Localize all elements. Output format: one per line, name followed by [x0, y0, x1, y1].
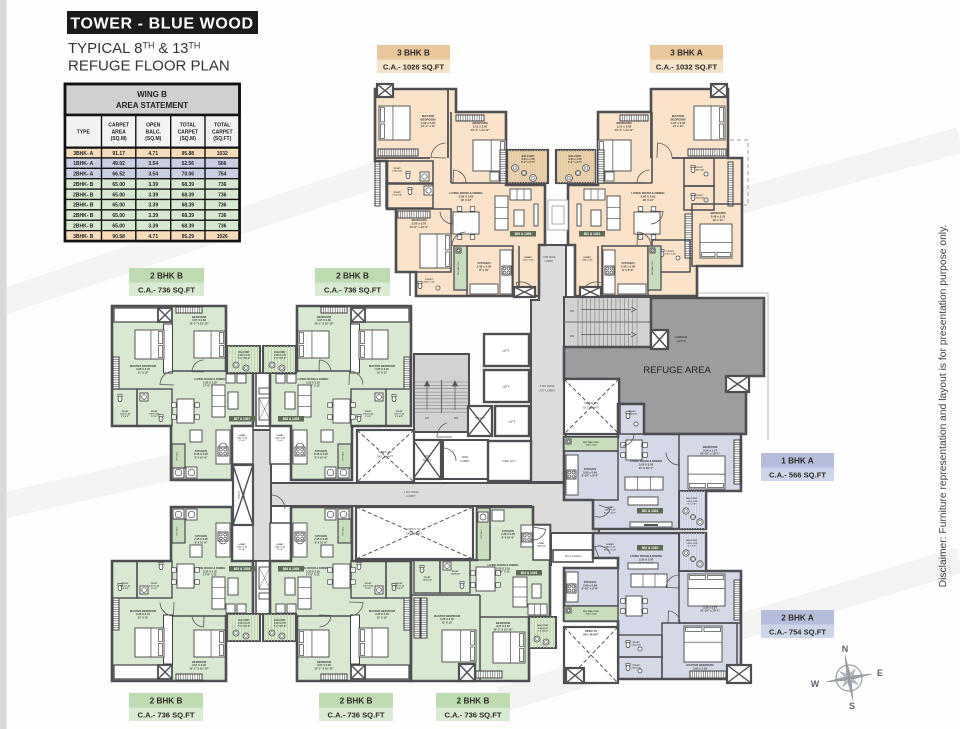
svg-text:OPEN: OPEN	[146, 123, 161, 129]
svg-text:2.05x1.40: 2.05x1.40	[694, 169, 705, 172]
svg-text:LOBBY: LOBBY	[606, 544, 614, 546]
svg-text:BALCONY: BALCONY	[238, 351, 250, 354]
svg-text:C.A.- 736 SQ.FT: C.A.- 736 SQ.FT	[324, 285, 381, 294]
svg-text:DN: DN	[454, 416, 458, 420]
svg-text:804 & 1304: 804 & 1304	[521, 571, 538, 575]
svg-text:TEL.C & ELEC.: TEL.C & ELEC.	[565, 555, 582, 558]
svg-text:4.71: 4.71	[148, 151, 158, 157]
svg-text:1.70x1.35: 1.70x1.35	[694, 198, 705, 200]
svg-text:BALCONY: BALCONY	[274, 619, 286, 622]
svg-text:7'-1" X 6'-2": 7'-1" X 6'-2"	[274, 626, 287, 628]
svg-text:14'-1" x 11': 14'-1" x 11'	[421, 124, 436, 128]
svg-text:2.05x1.40: 2.05x1.40	[392, 170, 402, 173]
svg-text:Disclaimer: Furniture represen: Disclaimer: Furniture representation and…	[938, 225, 949, 588]
svg-text:5' x 4': 5' x 4'	[239, 439, 245, 442]
svg-text:2.45 X 1.07: 2.45 X 1.07	[238, 622, 250, 625]
svg-text:17'-6" X 11': 17'-6" X 11'	[306, 573, 320, 577]
svg-text:10'-6" x 12'-2": 10'-6" x 12'-2"	[410, 225, 430, 229]
svg-text:19' X 12': 19' X 12'	[642, 198, 654, 202]
svg-text:UP: UP	[570, 309, 574, 313]
svg-text:65.00: 65.00	[112, 223, 125, 229]
svg-text:90.58: 90.58	[112, 234, 125, 240]
svg-text:802 & 1302: 802 & 1302	[642, 509, 659, 513]
svg-text:2 BHK B: 2 BHK B	[336, 271, 369, 280]
svg-text:5' X 4'-5": 5' X 4'-5"	[395, 587, 403, 590]
svg-text:C.A.- 1032 SQ.FT: C.A.- 1032 SQ.FT	[656, 62, 718, 71]
svg-text:W: W	[811, 679, 820, 689]
svg-text:805 & 1305: 805 & 1305	[234, 567, 251, 571]
svg-text:FIRE: FIRE	[424, 454, 430, 458]
svg-text:5' X 8': 5' X 8'	[151, 416, 157, 418]
svg-text:C.A.- 1026 SQ.FT: C.A.- 1026 SQ.FT	[383, 62, 445, 71]
svg-text:C.A.- 736 SQ.FT: C.A.- 736 SQ.FT	[138, 285, 195, 294]
svg-text:12' x 11': 12' x 11'	[713, 218, 724, 222]
svg-text:AREA STATEMENT: AREA STATEMENT	[116, 101, 188, 110]
svg-text:736: 736	[218, 203, 227, 209]
svg-text:9'-10" x 8'-6": 9'-10" x 8'-6"	[582, 474, 599, 478]
svg-text:2.32 x 1.35: 2.32 x 1.35	[424, 282, 436, 284]
svg-text:SKY SHAFT: SKY SHAFT	[583, 406, 600, 410]
svg-text:2 BHK B: 2 BHK B	[150, 696, 183, 705]
svg-text:5' X 4'-5": 5' X 4'-5"	[121, 587, 129, 590]
svg-text:736: 736	[218, 182, 227, 188]
svg-text:TOILET: TOILET	[425, 279, 433, 281]
svg-text:11' X 12': 11' X 12'	[138, 370, 149, 374]
svg-text:(SQ.M): (SQ.M)	[145, 136, 161, 142]
svg-text:803 & 1303: 803 & 1303	[642, 546, 659, 550]
svg-text:801 & 1301: 801 & 1301	[584, 232, 601, 236]
svg-text:8' X 10'-6": 8' X 10'-6"	[195, 540, 208, 544]
svg-text:TOILET: TOILET	[695, 195, 703, 197]
svg-text:OPEN TO: OPEN TO	[407, 527, 421, 531]
svg-text:SKY SHAFT: SKY SHAFT	[377, 455, 394, 459]
svg-text:AREA: AREA	[112, 129, 127, 135]
svg-text:65.00: 65.00	[112, 203, 125, 209]
svg-text:TOTAL: TOTAL	[214, 123, 230, 129]
svg-text:68.39: 68.39	[182, 182, 195, 188]
svg-text:C.A.- 736 SQ.FT: C.A.- 736 SQ.FT	[138, 710, 195, 719]
svg-text:3BHK- A: 3BHK- A	[73, 151, 93, 157]
svg-text:LIFT: LIFT	[503, 349, 510, 353]
svg-text:1.37 x 1.35: 1.37 x 1.35	[665, 254, 677, 256]
svg-text:DRY BALC.: DRY BALC.	[342, 526, 345, 536]
svg-text:C.A.- 736 SQ.FT: C.A.- 736 SQ.FT	[328, 710, 385, 719]
svg-text:68.39: 68.39	[182, 203, 195, 209]
svg-text:8' x 8'-6": 8' x 8'-6"	[622, 268, 634, 272]
svg-text:8' X 10'-6": 8' X 10'-6"	[195, 455, 208, 459]
svg-text:DRY BALC.: DRY BALC.	[342, 451, 345, 461]
svg-text:5' X 8': 5' X 8'	[365, 588, 371, 590]
svg-text:1.50 x 1.22: 1.50 x 1.22	[523, 260, 535, 262]
svg-text:1026: 1026	[217, 234, 228, 240]
svg-text:(SQ.M): (SQ.M)	[111, 136, 127, 142]
svg-text:68.39: 68.39	[182, 192, 195, 198]
svg-text:7'-1"X6'-2": 7'-1"X6'-2"	[538, 631, 549, 633]
svg-text:3 BHK A: 3 BHK A	[670, 48, 703, 57]
svg-text:5' x 4': 5' x 4'	[277, 548, 283, 551]
svg-text:DRY BALCONY: DRY BALCONY	[583, 441, 599, 444]
svg-text:11' X 12': 11' X 12'	[377, 370, 388, 374]
svg-text:10'-4" x 11'-9": 10'-4" x 11'-9"	[615, 128, 634, 132]
svg-text:3.54: 3.54	[148, 161, 158, 167]
svg-text:3.39: 3.39	[148, 223, 158, 229]
svg-text:UP: UP	[425, 416, 429, 420]
svg-text:BALCONY: BALCONY	[274, 351, 286, 354]
svg-text:TOILET: TOILET	[666, 251, 674, 253]
svg-text:65.00: 65.00	[112, 192, 125, 198]
svg-text:DRY BALC.: DRY BALC.	[176, 451, 179, 461]
svg-text:8' X 10'-6": 8' X 10'-6"	[502, 535, 515, 539]
svg-text:P.SHAFT: P.SHAFT	[475, 417, 485, 420]
svg-text:2 BHK A: 2 BHK A	[781, 613, 814, 622]
svg-text:736: 736	[218, 223, 227, 229]
svg-text:5' X 8': 5' X 8'	[151, 588, 157, 590]
svg-text:BALCONY: BALCONY	[687, 497, 698, 500]
svg-text:BALC.: BALC.	[146, 129, 162, 135]
svg-text:1.50x1.22: 1.50x1.22	[537, 546, 547, 548]
svg-text:TOILET: TOILET	[695, 167, 703, 169]
svg-text:S: S	[849, 701, 855, 711]
svg-text:CARPET: CARPET	[178, 129, 199, 135]
svg-text:C.A.- 736 SQ.FT: C.A.- 736 SQ.FT	[445, 710, 502, 719]
svg-text:7'-1" X 6'-2": 7'-1" X 6'-2"	[238, 626, 251, 628]
svg-text:809 & 1309: 809 & 1309	[515, 232, 532, 236]
svg-text:736: 736	[218, 192, 227, 198]
svg-text:2BHK- B: 2BHK- B	[73, 213, 94, 219]
svg-text:BALCONY: BALCONY	[538, 624, 549, 627]
svg-text:5' x 7'-8": 5' x 7'-8"	[688, 546, 697, 548]
svg-text:3.00 x 0.92: 3.00 x 0.92	[586, 614, 598, 616]
svg-text:2.45 X 1.07: 2.45 X 1.07	[238, 354, 250, 357]
svg-text:FIRE LIFT: FIRE LIFT	[502, 459, 516, 463]
svg-text:1.50 x 1.12: 1.50 x 1.12	[605, 510, 617, 512]
svg-text:2.45 X 1.07: 2.45 X 1.07	[274, 622, 286, 625]
svg-text:DRY BALC.: DRY BALC.	[176, 526, 179, 536]
svg-text:5' X 8': 5' X 8'	[365, 416, 371, 418]
svg-text:68.39: 68.39	[182, 223, 195, 229]
svg-text:2BHK- B: 2BHK- B	[73, 192, 94, 198]
svg-text:1.40x1.95: 1.40x1.95	[627, 413, 637, 416]
svg-text:2 BHK B: 2 BHK B	[150, 271, 183, 280]
svg-text:5' X 4'-5": 5' X 4'-5"	[395, 415, 403, 418]
svg-text:GARBAGE: GARBAGE	[675, 335, 688, 339]
svg-text:1BHK- A: 1BHK- A	[73, 161, 93, 167]
svg-text:TYPE: TYPE	[77, 129, 91, 135]
svg-text:DRY BALCONY: DRY BALCONY	[457, 260, 460, 275]
svg-text:1032: 1032	[217, 151, 228, 157]
svg-text:19' X 12': 19' X 12'	[460, 198, 472, 202]
svg-text:2BHK- B: 2BHK- B	[73, 203, 94, 209]
svg-text:10'-1" X 10'-10": 10'-1" X 10'-10"	[493, 627, 513, 631]
svg-text:7'-1" X 6'-2": 7'-1" X 6'-2"	[274, 358, 287, 360]
svg-text:1.50X2.42: 1.50X2.42	[450, 573, 460, 576]
svg-text:3BHK- B: 3BHK- B	[73, 234, 94, 240]
svg-text:BALCONY: BALCONY	[687, 539, 698, 542]
svg-text:2BHK- B: 2BHK- B	[73, 223, 94, 229]
svg-text:65.00: 65.00	[112, 213, 125, 219]
svg-text:566: 566	[218, 161, 227, 167]
svg-text:11' X 12': 11' X 12'	[377, 615, 388, 619]
svg-text:8' x 10': 8' x 10'	[479, 268, 489, 272]
svg-text:807 & 1307: 807 & 1307	[234, 417, 251, 421]
svg-text:LOBBY: LOBBY	[583, 257, 591, 259]
svg-text:LIFT: LIFT	[509, 420, 516, 424]
svg-text:DN: DN	[570, 334, 574, 338]
svg-text:2.45 X 1.07: 2.45 X 1.07	[274, 354, 286, 357]
svg-text:TOTAL: TOTAL	[180, 123, 196, 129]
svg-text:3.54: 3.54	[148, 172, 158, 178]
svg-text:736: 736	[218, 213, 227, 219]
svg-text:1 BHK A: 1 BHK A	[781, 456, 814, 465]
svg-text:6'-9" x 3'-5": 6'-9" x 3'-5"	[568, 160, 583, 164]
svg-text:6'-9" x 3'-5": 6'-9" x 3'-5"	[521, 160, 536, 164]
svg-text:TYPICAL 8TH & 13TH: TYPICAL 8TH & 13TH	[68, 40, 200, 57]
svg-text:TOWER - BLUE WOOD: TOWER - BLUE WOOD	[70, 16, 253, 33]
svg-text:17'-6" X 11': 17'-6" X 11'	[203, 573, 217, 577]
svg-text:10'-1" X 10'-10": 10'-1" X 10'-10"	[314, 666, 334, 670]
svg-text:4'-2" x 5'-8": 4'-2" x 5'-8"	[604, 548, 616, 551]
svg-text:52.56: 52.56	[182, 161, 195, 167]
svg-text:11' X 18'-1": 11' X 18'-1"	[639, 466, 654, 470]
svg-text:3.39: 3.39	[148, 192, 158, 198]
svg-text:E: E	[877, 668, 883, 678]
svg-text:49.02: 49.02	[112, 161, 125, 167]
svg-text:SKY SHAFT: SKY SHAFT	[583, 632, 599, 636]
svg-text:DRY BALCONY: DRY BALCONY	[651, 260, 654, 275]
svg-text:2BHK- B: 2BHK- B	[73, 182, 94, 188]
svg-text:LIFT LOBBY: LIFT LOBBY	[539, 389, 556, 393]
svg-text:1.50 x 1.22: 1.50 x 1.22	[582, 260, 594, 262]
svg-text:1.52 x 2.32: 1.52 x 2.32	[687, 543, 699, 545]
svg-text:66.52: 66.52	[112, 172, 125, 178]
svg-text:OPEN TO: OPEN TO	[584, 401, 598, 405]
svg-text:8' X 10'-6": 8' X 10'-6"	[315, 455, 328, 459]
svg-text:REFUGE FLOOR PLAN: REFUGE FLOOR PLAN	[68, 58, 230, 75]
svg-text:2BHK- A: 2BHK- A	[73, 172, 93, 178]
svg-text:5' x 4': 5' x 4'	[277, 439, 283, 442]
svg-text:1.52 x 2.32: 1.52 x 2.32	[687, 501, 699, 503]
svg-text:C.A.- 754 SQ.FT: C.A.- 754 SQ.FT	[769, 627, 826, 636]
svg-text:1.5M WIDE: 1.5M WIDE	[542, 255, 556, 259]
svg-text:5' x 7'-8": 5' x 7'-8"	[688, 504, 697, 506]
svg-text:8' X 10'-6": 8' X 10'-6"	[315, 540, 328, 544]
svg-text:SKY SHAFT: SKY SHAFT	[406, 532, 423, 536]
svg-text:LOBBY: LOBBY	[406, 494, 416, 498]
svg-text:3 BHK B: 3 BHK B	[397, 48, 430, 57]
svg-text:808 & 1308: 808 & 1308	[283, 417, 300, 421]
svg-text:N: N	[842, 644, 849, 654]
svg-text:3.39: 3.39	[148, 213, 158, 219]
svg-text:2.5M WIDE: 2.5M WIDE	[539, 384, 554, 388]
svg-text:4'-2" x 5'-8": 4'-2" x 5'-8"	[604, 511, 616, 514]
svg-text:14' x 11': 14' x 11'	[673, 124, 684, 128]
svg-text:10'-1" X 10'-10": 10'-1" X 10'-10"	[189, 321, 209, 325]
svg-text:BALCONY: BALCONY	[238, 619, 250, 622]
svg-text:5' X 4'-5": 5' X 4'-5"	[121, 415, 129, 418]
svg-text:3.00 x 0.92: 3.00 x 0.92	[586, 445, 598, 447]
svg-text:1.50X1.35: 1.50X1.35	[422, 580, 432, 582]
svg-text:3.39: 3.39	[148, 203, 158, 209]
svg-text:10'-1" X 10'-10": 10'-1" X 10'-10"	[189, 666, 209, 670]
svg-text:754: 754	[218, 172, 227, 178]
svg-text:806 & 1306: 806 & 1306	[283, 567, 300, 571]
svg-text:7'-1" X 6'-2": 7'-1" X 6'-2"	[238, 358, 251, 360]
svg-text:TEL/ELECT.: TEL/ELECT.	[244, 489, 246, 501]
svg-text:(SQ.FT): (SQ.FT)	[213, 136, 231, 142]
svg-text:65.00: 65.00	[112, 182, 125, 188]
svg-text:11' X 12': 11' X 12'	[138, 615, 149, 619]
svg-text:1.70x1.35: 1.70x1.35	[392, 195, 402, 197]
svg-text:SHAFT: SHAFT	[423, 458, 432, 462]
svg-text:4.71: 4.71	[148, 234, 158, 240]
svg-text:68.39: 68.39	[182, 213, 195, 219]
svg-text:SHAFT: SHAFT	[238, 491, 241, 499]
svg-text:70.06: 70.06	[182, 172, 195, 178]
svg-text:10'-4" x 11'-9": 10'-4" x 11'-9"	[471, 128, 490, 132]
svg-text:2.30x1.35: 2.30x1.35	[631, 668, 641, 670]
svg-text:CARPET: CARPET	[212, 129, 233, 135]
svg-text:95.88: 95.88	[182, 151, 195, 157]
svg-text:LOBBY: LOBBY	[460, 459, 470, 463]
svg-text:LOBBY: LOBBY	[524, 257, 532, 259]
svg-text:3.39: 3.39	[148, 182, 158, 188]
svg-text:CHUTE: CHUTE	[677, 339, 686, 343]
svg-text:LIFT: LIFT	[503, 385, 510, 389]
svg-text:91.17: 91.17	[112, 151, 125, 157]
svg-text:5' x 4': 5' x 4'	[239, 548, 245, 551]
svg-text:WING B: WING B	[137, 90, 167, 99]
svg-text:(SQ.M): (SQ.M)	[180, 136, 196, 142]
svg-text:2 BHK B: 2 BHK B	[457, 696, 490, 705]
svg-text:C.A.- 566 SQ.FT: C.A.- 566 SQ.FT	[769, 470, 826, 479]
svg-text:OPEN TO: OPEN TO	[378, 450, 392, 454]
svg-text:REFUGE AREA: REFUGE AREA	[643, 365, 711, 376]
svg-text:2 BHK B: 2 BHK B	[340, 696, 373, 705]
svg-text:9'-10" x 8'-6": 9'-10" x 8'-6"	[582, 587, 599, 591]
svg-text:DRY BALCONY: DRY BALCONY	[583, 610, 599, 613]
svg-text:1.40x1.90: 1.40x1.90	[631, 644, 641, 647]
svg-text:11' X 12': 11' X 12'	[442, 620, 453, 624]
svg-text:10'-1" X 10'-10": 10'-1" X 10'-10"	[314, 321, 334, 325]
svg-text:10'-10" x 10'-1": 10'-10" x 10'-1"	[700, 609, 721, 613]
svg-text:10'-10" x 10'-1": 10'-10" x 10'-1"	[700, 452, 721, 456]
svg-text:95.29: 95.29	[182, 234, 195, 240]
svg-text:DRY BALC.: DRY BALC.	[480, 529, 483, 539]
svg-text:CARPET: CARPET	[108, 123, 129, 129]
svg-text:LOBBY: LOBBY	[545, 259, 554, 263]
svg-text:2.45X1.07: 2.45X1.07	[538, 627, 549, 630]
